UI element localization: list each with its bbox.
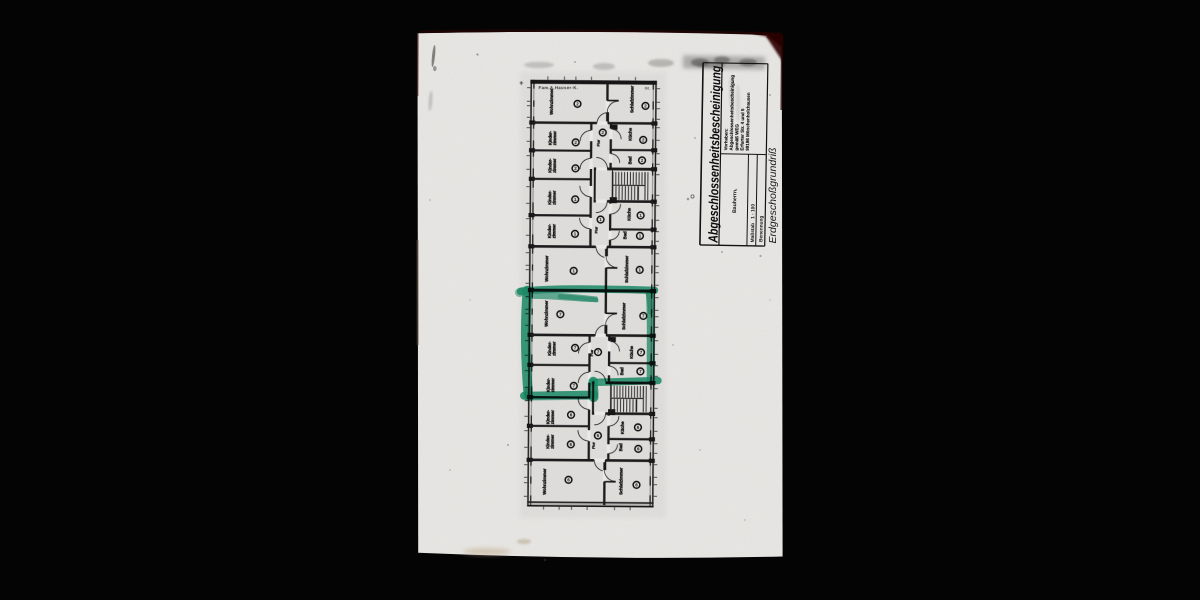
svg-text:zimmer: zimmer bbox=[552, 131, 557, 146]
svg-text:Flur: Flur bbox=[590, 349, 594, 356]
svg-text:99198 Mönchenholzhausen: 99198 Mönchenholzhausen bbox=[745, 92, 751, 151]
svg-text:zimmer: zimmer bbox=[550, 410, 555, 425]
svg-text:Schlafzimmer: Schlafzimmer bbox=[624, 255, 629, 283]
svg-text:zimmer: zimmer bbox=[552, 190, 557, 205]
svg-text:Flur: Flur bbox=[592, 442, 596, 449]
svg-text:zimmer: zimmer bbox=[552, 224, 557, 239]
svg-text:zimmer: zimmer bbox=[550, 378, 555, 393]
svg-text:zimmer: zimmer bbox=[552, 158, 557, 173]
svg-text:Wohnzimmer: Wohnzimmer bbox=[549, 88, 554, 115]
svg-text:Küche: Küche bbox=[620, 421, 625, 435]
svg-text:Bauherrn,: Bauherrn, bbox=[732, 188, 738, 213]
svg-text:Küche: Küche bbox=[627, 207, 632, 221]
svg-text:Fam.A.Hauser-K.: Fam.A.Hauser-K. bbox=[539, 85, 579, 90]
svg-text:Bad: Bad bbox=[618, 443, 623, 451]
svg-text:Gt.: Gt. bbox=[645, 86, 650, 90]
svg-text:Wohnzimmer: Wohnzimmer bbox=[544, 300, 549, 327]
svg-text:Küche: Küche bbox=[629, 345, 634, 359]
svg-text:Maßstab 1 : 100: Maßstab 1 : 100 bbox=[750, 204, 757, 243]
svg-text:zimmer: zimmer bbox=[552, 341, 557, 356]
svg-text:Flur: Flur bbox=[597, 139, 601, 146]
svg-text:Küche: Küche bbox=[628, 127, 633, 141]
svg-text:Benennung: Benennung bbox=[758, 216, 764, 243]
svg-text:Bad: Bad bbox=[622, 231, 627, 239]
svg-text:Flur: Flur bbox=[594, 226, 598, 233]
svg-text:Schlafzimmer: Schlafzimmer bbox=[621, 302, 626, 330]
svg-text:Bad: Bad bbox=[628, 156, 633, 164]
svg-text:Erdgeschoßgrundriß: Erdgeschoßgrundriß bbox=[768, 148, 779, 244]
svg-text:Wohnzimmer: Wohnzimmer bbox=[544, 255, 549, 282]
svg-text:Bad: Bad bbox=[619, 367, 624, 375]
svg-text:zimmer: zimmer bbox=[550, 434, 555, 449]
svg-text:Wohnzimmer: Wohnzimmer bbox=[542, 468, 547, 495]
svg-text:Abgeschlossenheitsbescheinigun: Abgeschlossenheitsbescheinigung bbox=[705, 66, 723, 244]
svg-text:Schlafzimmer: Schlafzimmer bbox=[618, 467, 623, 495]
svg-text:Schlafzimmer: Schlafzimmer bbox=[629, 85, 634, 113]
